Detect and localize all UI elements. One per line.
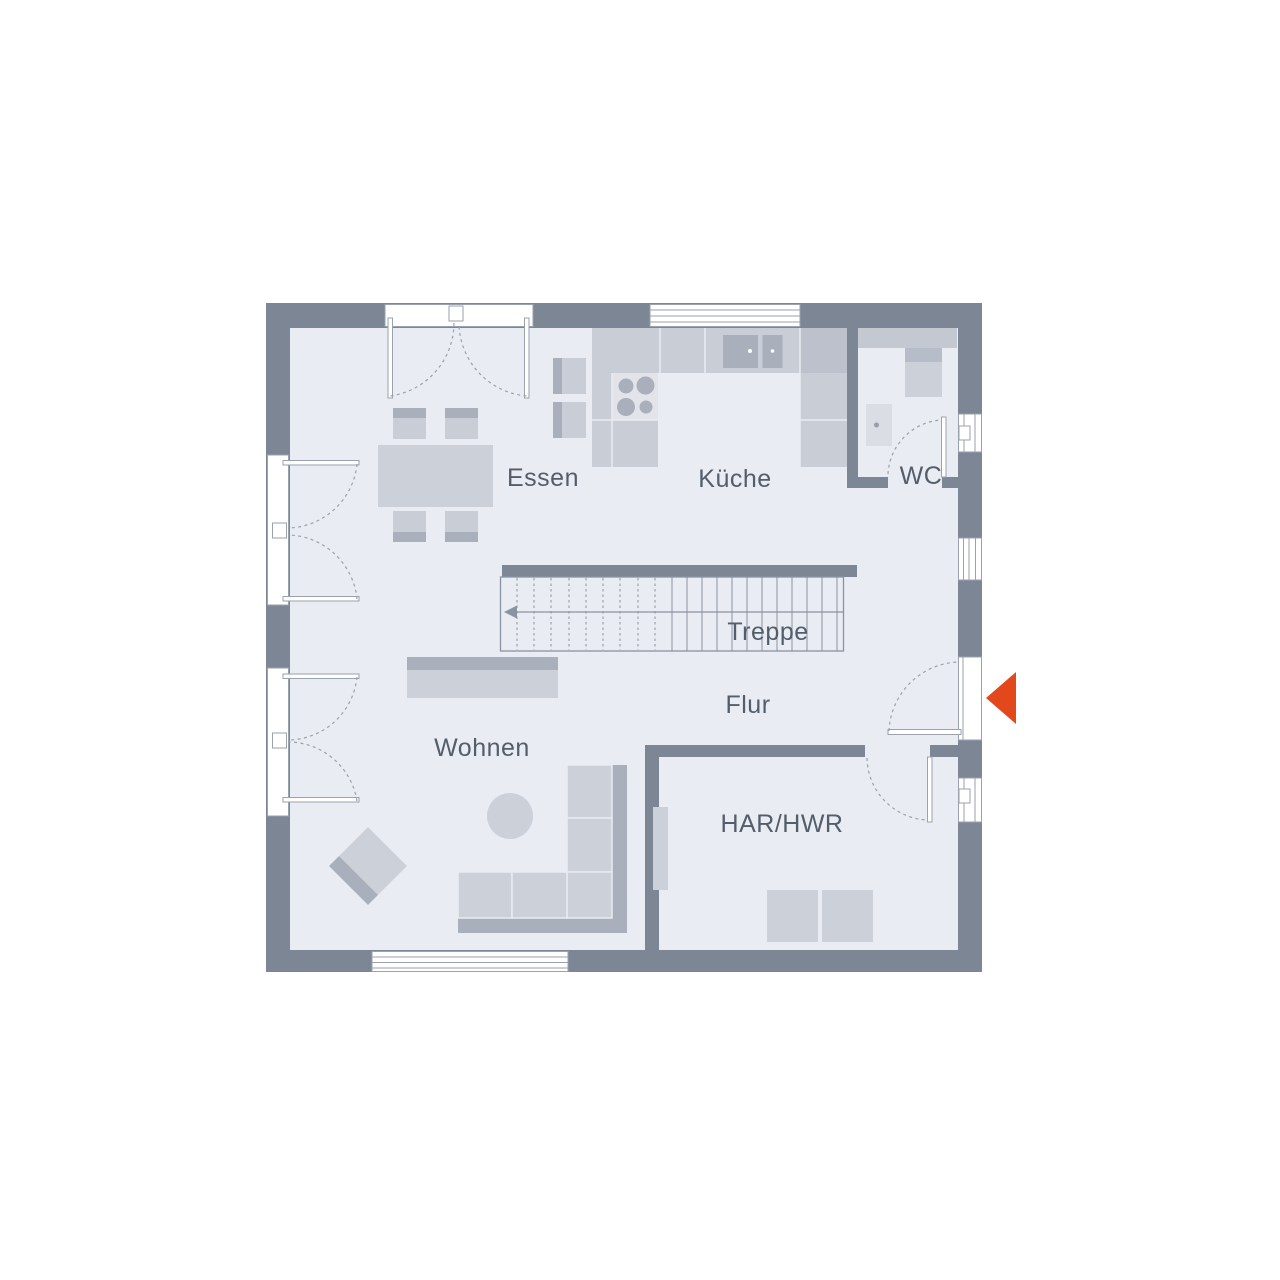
floor-plan: Essen Küche WC Treppe Flur Wohnen HAR/HW…: [0, 0, 1280, 1280]
fridge: [800, 328, 847, 373]
door-post: [273, 733, 287, 748]
wc-window: [959, 414, 982, 452]
window-handle: [959, 789, 970, 803]
room-label-treppe: Treppe: [727, 618, 808, 646]
wall-wc-south-left: [847, 477, 888, 488]
heater: [653, 807, 668, 890]
door-post: [449, 306, 463, 321]
door-leaf: [283, 461, 359, 466]
chair: [445, 511, 478, 542]
door-leaf: [283, 674, 359, 679]
wohnen-window: [372, 952, 568, 972]
room-label-kueche: Küche: [698, 465, 771, 493]
door-leaf: [888, 730, 961, 735]
coffee-table: [487, 793, 533, 839]
washer: [767, 890, 818, 942]
entrance-arrow-icon: [986, 672, 1016, 724]
tall-cabinet: [553, 358, 586, 394]
door-leaf: [283, 597, 359, 602]
door-leaf: [388, 318, 393, 398]
wall-flur-har-left: [645, 745, 865, 757]
window-handle: [959, 426, 970, 440]
har-window: [959, 778, 982, 822]
wc-vanity: [858, 328, 957, 348]
kitchen-window: [650, 305, 800, 327]
wall-flur-har-right: [930, 745, 958, 757]
door-leaf: [525, 318, 530, 398]
chair: [445, 408, 478, 439]
room-label-har: HAR/HWR: [721, 810, 844, 838]
room-label-essen: Essen: [507, 464, 579, 492]
toilet: [905, 348, 942, 397]
flur-window: [959, 538, 982, 580]
wall-left: [266, 303, 290, 972]
stairs-stringer: [502, 565, 857, 577]
wall-top: [266, 303, 982, 328]
kitchen-sink: [723, 335, 783, 368]
room-label-wohnen: Wohnen: [434, 734, 530, 762]
wall-right: [958, 303, 982, 972]
floor-plan-page: Essen Küche WC Treppe Flur Wohnen HAR/HW…: [0, 0, 1280, 1280]
door-leaf: [283, 798, 359, 803]
dining-table: [378, 445, 493, 507]
chair: [393, 408, 426, 439]
dryer: [822, 890, 873, 942]
chair: [393, 511, 426, 542]
room-label-wc: WC: [900, 462, 943, 490]
door-post: [273, 523, 287, 538]
tall-cabinet: [553, 402, 586, 438]
room-label-flur: Flur: [725, 691, 770, 719]
washbasin: [866, 404, 892, 446]
wall-wc-south-right: [942, 477, 958, 488]
door-leaf: [928, 757, 933, 822]
sideboard: [407, 657, 558, 698]
wall-kitchen-wc: [847, 328, 858, 488]
